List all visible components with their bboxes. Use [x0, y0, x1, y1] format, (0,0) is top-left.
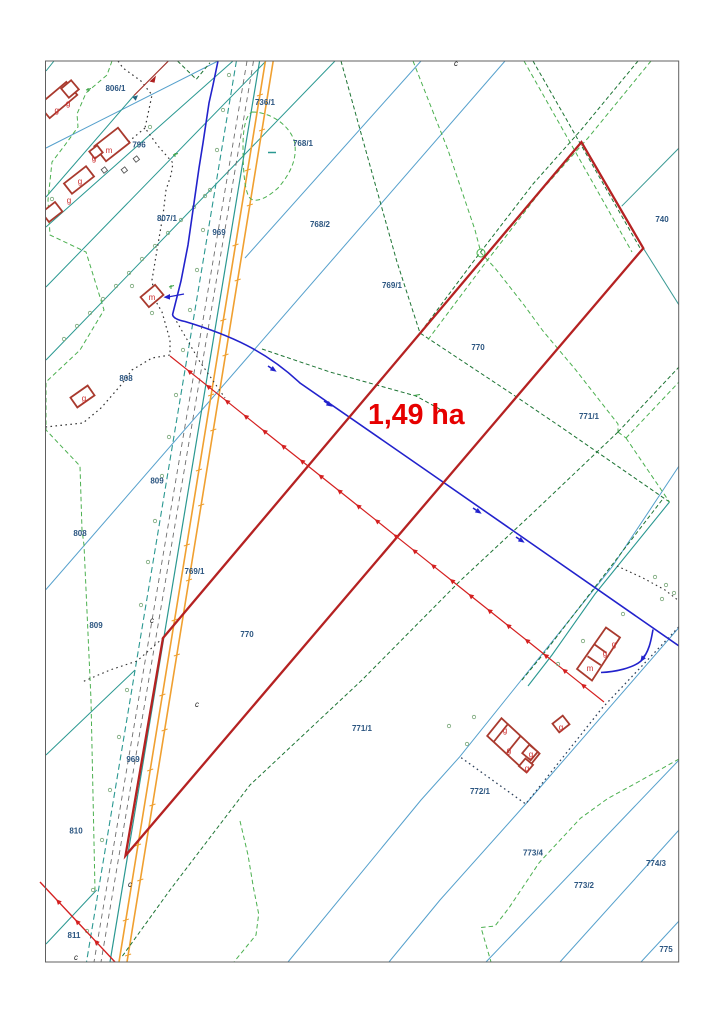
svg-text:809: 809	[89, 621, 103, 630]
svg-text:g: g	[503, 726, 507, 735]
svg-text:809: 809	[150, 477, 164, 486]
svg-text:c: c	[128, 880, 132, 889]
svg-text:808: 808	[73, 529, 87, 538]
svg-text:1,49 ha: 1,49 ha	[368, 399, 466, 431]
svg-text:775: 775	[659, 945, 673, 954]
svg-text:c: c	[74, 953, 78, 962]
svg-text:g: g	[529, 750, 533, 759]
svg-text:969: 969	[212, 228, 226, 237]
svg-text:769/1: 769/1	[382, 281, 403, 290]
svg-text:c: c	[195, 700, 199, 709]
svg-text:g: g	[54, 106, 58, 115]
svg-text:770: 770	[240, 630, 254, 639]
svg-text:m: m	[106, 146, 113, 155]
svg-text:811: 811	[68, 931, 81, 940]
svg-text:771/1: 771/1	[352, 724, 373, 733]
svg-text:g: g	[612, 640, 616, 649]
svg-text:768/1: 768/1	[293, 139, 314, 148]
svg-text:773/2: 773/2	[574, 881, 595, 890]
svg-text:m: m	[587, 664, 594, 673]
svg-text:769/1: 769/1	[184, 567, 205, 576]
svg-text:774/3: 774/3	[646, 859, 667, 868]
svg-text:740: 740	[655, 215, 669, 224]
svg-text:796: 796	[132, 141, 146, 150]
svg-text:g: g	[92, 154, 96, 163]
svg-text:m: m	[149, 293, 156, 302]
svg-text:g: g	[78, 177, 82, 186]
svg-text:806/1: 806/1	[105, 84, 126, 93]
svg-text:808: 808	[119, 374, 133, 383]
svg-text:g: g	[603, 649, 607, 658]
svg-text:g: g	[67, 196, 71, 205]
svg-text:771/1: 771/1	[579, 412, 600, 421]
svg-text:810: 810	[69, 827, 83, 836]
svg-text:773/4: 773/4	[523, 849, 544, 858]
svg-text:807/1: 807/1	[157, 214, 178, 223]
svg-text:768/2: 768/2	[310, 220, 331, 229]
svg-text:g: g	[507, 746, 511, 755]
svg-text:c: c	[150, 616, 154, 625]
svg-text:g: g	[82, 394, 86, 403]
svg-text:770: 770	[471, 343, 485, 352]
svg-text:772/1: 772/1	[470, 787, 491, 796]
svg-text:736/1: 736/1	[255, 98, 276, 107]
svg-text:969: 969	[126, 755, 140, 764]
svg-text:g: g	[559, 723, 563, 732]
svg-text:g: g	[66, 99, 70, 108]
svg-text:g: g	[525, 764, 529, 773]
